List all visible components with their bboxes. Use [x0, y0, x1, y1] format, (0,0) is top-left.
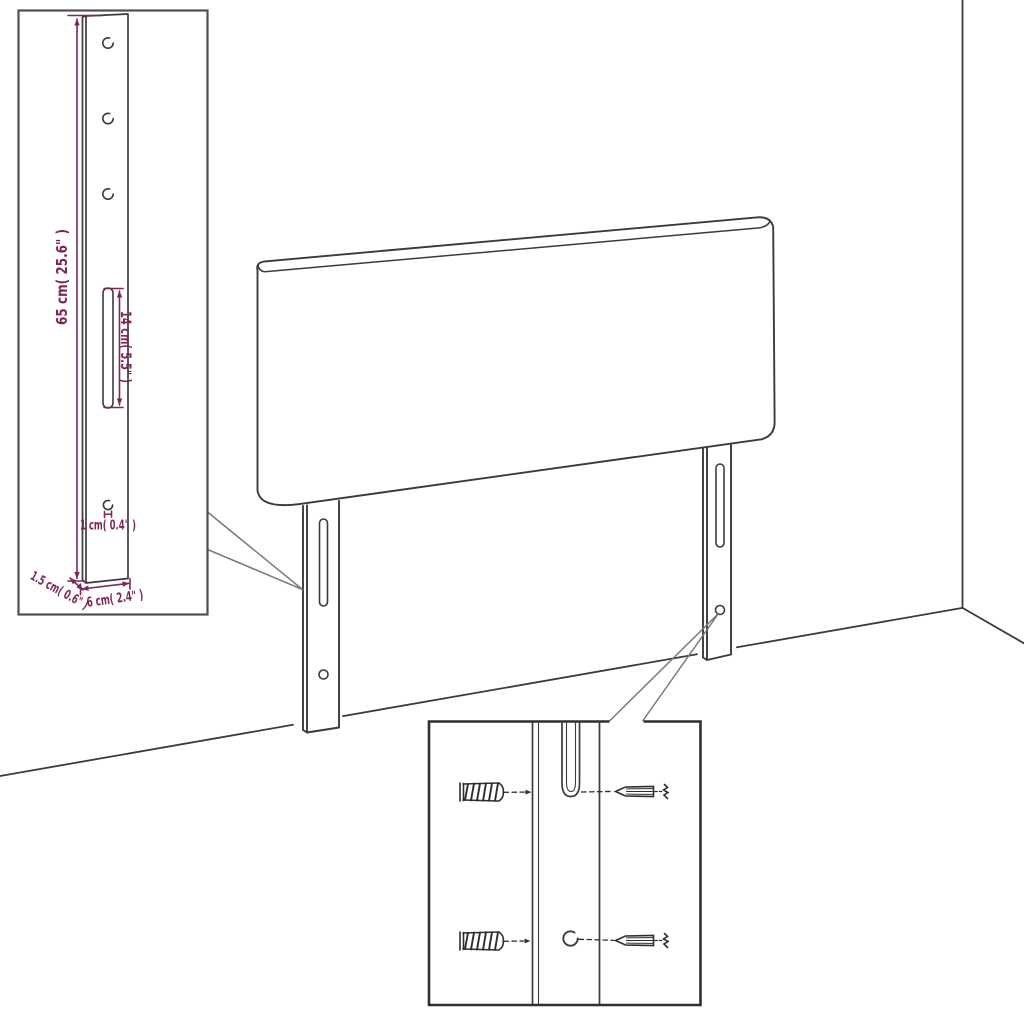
headboard-assembly-diagram: 65 cm( 25.6" ) 14 cm( 5.5" ) 1 cm( 0.4" …	[0, 0, 1024, 1024]
left-leg	[303, 501, 339, 733]
left-leg-hole	[319, 670, 328, 679]
leg-detail-inset: 65 cm( 25.6" ) 14 cm( 5.5" ) 1 cm( 0.4" …	[19, 11, 208, 615]
dim-leg-height-label: 65 cm( 25.6" )	[53, 229, 71, 325]
dim-hole-diameter-label: 1 cm( 0.4" )	[80, 518, 136, 534]
headboard	[257, 217, 774, 732]
mounting-inset-border	[429, 722, 701, 1006]
floor-line-right	[963, 608, 1024, 643]
leg-detail-callout-line	[208, 512, 303, 590]
callout-lines	[208, 512, 719, 721]
mounting-detail-inset	[429, 722, 701, 1006]
dim-slot-length-label: 14 cm( 5.5" )	[117, 311, 133, 383]
right-leg-outline	[703, 445, 731, 661]
right-leg-hole	[716, 606, 725, 615]
left-leg-outline	[303, 501, 339, 733]
headboard-panel	[257, 217, 774, 505]
diagram-canvas: 65 cm( 25.6" ) 14 cm( 5.5" ) 1 cm( 0.4" …	[0, 0, 1024, 1024]
left-leg-slot	[320, 519, 328, 606]
right-leg	[703, 445, 731, 661]
right-leg-slot	[716, 464, 724, 547]
